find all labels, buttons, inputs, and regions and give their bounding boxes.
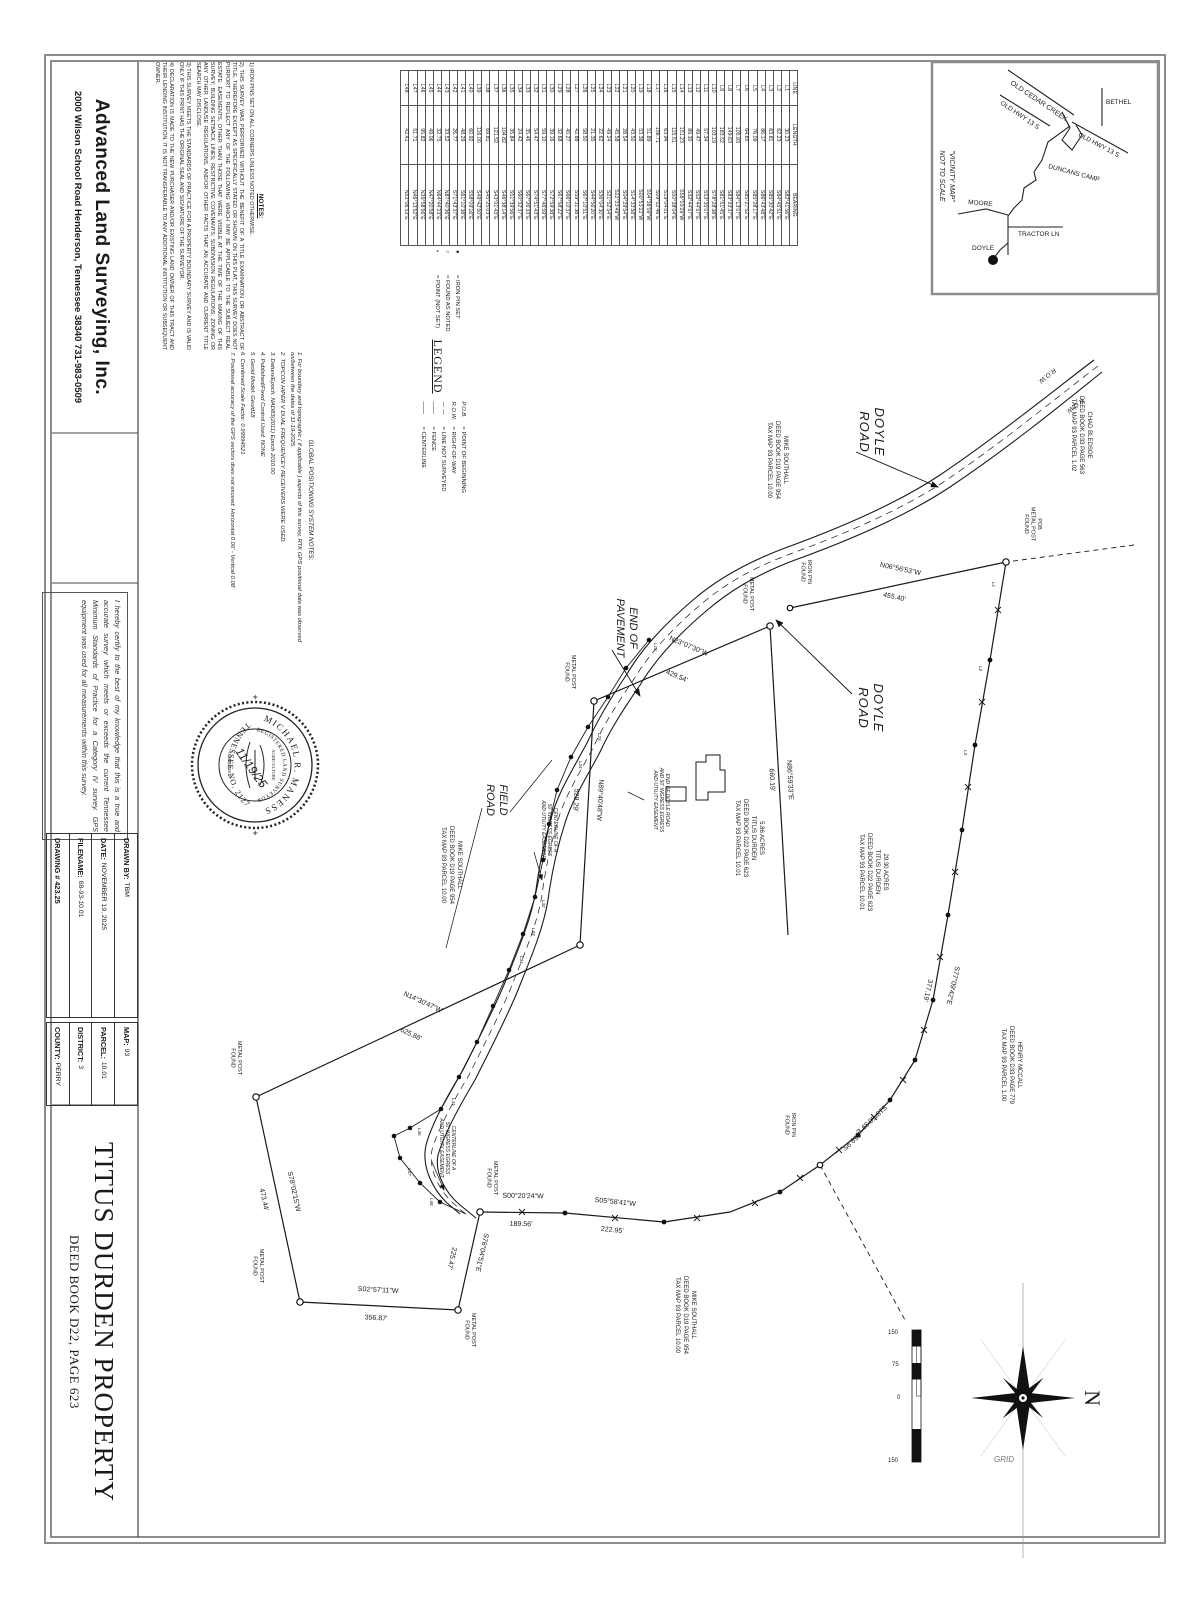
line-table-cell: S67°26'33"E — [522, 164, 530, 245]
line-table-cell: 58.50 — [579, 106, 587, 164]
survey-plat-page: OLD CEDAR CREEK OLD HWY 13 S OLD HWY 13 … — [0, 0, 1200, 1600]
bearing-n06: N06°56'53"W — [879, 561, 922, 578]
line-table-header-cell: LENGTH — [789, 106, 797, 164]
vicinity-caption-1: "VICINITY MAP" — [948, 150, 955, 202]
date-row: DATE:NOVEMBER 19, 2025 — [92, 834, 115, 1017]
compass-rose: N — [971, 1283, 1105, 1558]
line-table-cell: N39°58'56"E — [417, 164, 425, 245]
line-table-cell: 156.71 — [652, 106, 660, 164]
notes-list: 1) IRON PINS SET ON ALL CORNERS UNLESS N… — [153, 62, 253, 350]
line-table-cell: S53°35'07"E — [700, 164, 708, 245]
notes-heading: NOTES: — [256, 62, 264, 350]
doyle-road-arrow-2 — [776, 620, 852, 694]
line-table-row: L17156.71S09°52'46"E — [652, 71, 660, 246]
iron-pin-label-east: IRON PINFOUND — [784, 1113, 797, 1137]
line-table-cell: S59°31'38"E — [571, 164, 579, 245]
legend-abbrev-item: ───= FENCE — [430, 402, 436, 493]
corner-583 — [577, 942, 583, 948]
row-label-2: R.O.W. — [1036, 366, 1057, 385]
scale-bar: 150 75 0 150 — [888, 1330, 921, 1464]
line-table-row: L4751.71N46°13'52"E — [409, 71, 417, 246]
legend-heading: LEGEND — [431, 340, 446, 394]
vicinity-road-doyle — [994, 243, 1008, 258]
line-table-cell: 183.52 — [717, 106, 725, 164]
line-table-cell: L1 — [781, 71, 789, 106]
line-table-cell: L38 — [482, 71, 490, 106]
line-table-row: L10103.19S78°28'38"E — [708, 71, 716, 246]
line-table-cell: 32.75 — [433, 106, 441, 164]
line-table-cell: S61°10'38"E — [458, 164, 466, 245]
scale-0: 0 — [897, 1395, 901, 1401]
line-table-row: L3535.84S51°39'56"E — [506, 71, 514, 246]
l-label-2: L2 — [978, 666, 983, 672]
line-table-row: L486.17S86°43'48"E — [757, 71, 765, 246]
metal-post-label-botleft: METAL POSTFOUND — [252, 1249, 265, 1284]
dist-s00: 189.56' — [510, 1221, 533, 1228]
vicinity-caption-2: NOT TO SCALE — [938, 150, 945, 202]
iron-pin-top — [787, 605, 792, 610]
line-table-row: L37121.52S43°01'43"E — [490, 71, 498, 246]
line-table-cell: S36°04'30"E — [595, 164, 603, 245]
metal-post-left — [591, 698, 597, 704]
line-table-header-cell: LINE — [789, 71, 797, 106]
line-table-cell: S85°28'17"E — [749, 164, 757, 245]
filename-label: FILENAME: — [76, 838, 85, 878]
legend-abbrev-item: ───= CENTERLINE — [420, 402, 426, 493]
line-table-cell: 49.47 — [692, 106, 700, 164]
line-table-cell: 69.81 — [482, 106, 490, 164]
line-table-row: L262.23S84°45'51"E — [773, 71, 781, 246]
line-table-cell: L46 — [417, 71, 425, 106]
line-table-cell: 48.29 — [458, 106, 466, 164]
line-table-row: L2742.88S59°31'38"E — [571, 71, 579, 246]
legend-symbols: ●= IRON PIN SET○= FOUND AS NOTED•= POINT… — [420, 250, 460, 332]
metal-post-leftlow — [253, 1094, 259, 1100]
vicinity-road-moore — [958, 209, 1008, 215]
seal-plus-left: + — [250, 694, 260, 699]
notes-block: NOTES: 1) IRON PINS SET ON ALL CORNERS U… — [140, 62, 264, 350]
l-label-47: L47 — [407, 1168, 412, 1176]
line-table: LINELENGTHBEARING L130.23S82°41'56"EL262… — [400, 70, 798, 246]
line-table-row: L1249.47S52°44'57"E — [692, 71, 700, 246]
bearing-s05: S05°58'41"W — [594, 1196, 636, 1208]
line-table-header-cell: BEARING — [789, 164, 797, 245]
line-table-cell: 22.62 — [595, 106, 603, 164]
line-table-cell: L48 — [401, 71, 409, 106]
legend-text: = LINE NOT SURVEYED — [440, 427, 446, 492]
parcel-titus-5: 5.86 ACRESTITUS DURDENDEED BOOK D22 PAGE… — [734, 799, 764, 878]
line-table-cell: 28.54 — [619, 106, 627, 164]
legend-symbol: R.O.W. — [450, 402, 456, 424]
line-table-row: L2043.50S14°33'58"E — [628, 71, 636, 246]
line-table-cell: S14°33'58"E — [628, 164, 636, 245]
legend-text: = RIGHT-OF-WAY — [450, 427, 456, 474]
line-table-cell: L22 — [611, 71, 619, 106]
line-table-cell: 76.09 — [749, 106, 757, 164]
l-vertex-labels: L1 L2 L3 L13 L23 L24 L32 L33 L34 L44 L46… — [407, 582, 996, 1206]
district-value: 3 — [77, 1065, 84, 1069]
line-table-row: L2349.24S21°52'54"E — [603, 71, 611, 246]
dashed-extension-east — [820, 1165, 905, 1320]
metal-post-label-leftlow: METAL POSTFOUND — [230, 1041, 243, 1076]
gps-note-item: 2. TOPCON HIPER V DUAL FREQUENCEY RECEIV… — [277, 352, 285, 648]
line-table-cell: N47°20'58"E — [425, 164, 433, 245]
vicinity-label-old-hwy-1: OLD HWY 13 S — [999, 100, 1041, 132]
bearing-s00: S00°20'24"W — [502, 1192, 544, 1201]
road-centerline — [431, 366, 1098, 1216]
legend-abbrev-item: R.O.W.= RIGHT-OF-WAY — [450, 402, 456, 493]
bearing-s76: S76°04'51"E — [474, 1232, 491, 1272]
line-table-row: L4333.52N87°40'36"E — [441, 71, 449, 246]
parcel-chad-bledsoe: CHAD BLEDSOEDEED BOOK D33 PAGE 563TAX MA… — [1070, 396, 1092, 475]
vicinity-label-tractor-ln: TRACTOR LN — [1018, 231, 1060, 238]
gps-note-item: 5. Geoid Model: Geoid18 — [247, 352, 255, 648]
line-table-cell: L41 — [458, 71, 466, 106]
dist-n06: 455.40' — [882, 592, 906, 604]
line-table-cell: S09°52'46"E — [652, 164, 660, 245]
line-table-cell: 32.68 — [555, 106, 563, 164]
line-table-cell: 62.23 — [773, 106, 781, 164]
drawn-by-value: TBM — [123, 883, 130, 897]
drawing-info-box: DRAWN BY:TBM DATE:NOVEMBER 19, 2025 FILE… — [46, 833, 138, 1018]
line-table-cell: S19°04'01"E — [660, 164, 668, 245]
map-row: MAP:93 — [114, 1023, 137, 1105]
seal-plus-right: + — [250, 830, 260, 835]
field-road-label: FIELDROAD — [484, 784, 509, 816]
road-edge-2 — [425, 360, 1094, 1214]
line-table-cell: L15 — [668, 71, 676, 106]
line-table-row: L39116.00S49°42'50"E — [474, 71, 482, 246]
line-table-row: L3254.47S74°51'43"E — [530, 71, 538, 246]
company-block: Advanced Land Surveying, Inc. 2000 Wilso… — [48, 62, 136, 432]
line-table-cell: L33 — [522, 71, 530, 106]
drawn-by-label: DRAWN BY: — [122, 838, 131, 880]
legend-text: = FOUND AS NOTED — [444, 275, 450, 332]
line-table-cell: 103.19 — [708, 106, 716, 164]
line-table-cell: L17 — [652, 71, 660, 106]
metal-post-label-left: METAL POSTFOUND — [564, 655, 577, 690]
line-table-cell: S58°03'29"W — [676, 164, 684, 245]
district-label: DISTRICT: — [76, 1027, 85, 1062]
line-table-row: L4549.06N47°20'58"E — [425, 71, 433, 246]
legend-text: = POINT (NOT SET) — [434, 275, 440, 328]
doyle-road-label-2: DOYLEROAD — [856, 683, 886, 732]
l-label-3: L3 — [963, 750, 968, 756]
seal-agriculture: AGRICULTURE — [271, 749, 276, 781]
line-table-cell: S32°44'57"E — [684, 164, 692, 245]
line-table-cell: 54.47 — [530, 106, 538, 164]
line-table-cell: 26.77 — [449, 106, 457, 164]
pob-monument — [1003, 559, 1009, 565]
sheet-subtitle: DEED BOOK D22, PAGE 623 — [67, 1235, 83, 1409]
line-table-row: L1663.94S19°04'01"E — [660, 71, 668, 246]
line-table-cell: L35 — [506, 71, 514, 106]
legend-symbol: — — — [440, 402, 446, 424]
plat-sheet: OLD CEDAR CREEK OLD HWY 13 S OLD HWY 13 … — [0, 0, 1200, 1600]
line-table-cell: 30.23 — [781, 106, 789, 164]
line-table-cell: S84°45'51"E — [773, 164, 781, 245]
legend-text: = POINT OF BEGINNING — [460, 427, 466, 493]
line-table-cell: S66°10'37"E — [563, 164, 571, 245]
line-table-row: L1389.30S32°44'57"E — [684, 71, 692, 246]
metal-post-botleft — [297, 1299, 303, 1305]
line-table-cell: L45 — [425, 71, 433, 106]
bearing-s18: S18°50'39"E — [854, 1103, 888, 1136]
line-table-cell: L14 — [676, 71, 684, 106]
line-table-cell: 95.82 — [417, 106, 425, 164]
legend-symbol-item: ●= IRON PIN SET — [454, 250, 460, 332]
line-table-cell: S81°51'45"E — [717, 164, 725, 245]
line-table-cell: 21.35 — [587, 106, 595, 164]
gps-note-item: 4. Published/Fixed Control Used: NONE — [257, 352, 265, 648]
legend-symbol: ─── — [420, 402, 426, 424]
line-table-cell: L40 — [466, 71, 474, 106]
line-table-cell: L31 — [539, 71, 547, 106]
line-table-row: L3335.46S67°26'33"E — [522, 71, 530, 246]
end-easement-leader — [628, 792, 644, 800]
line-table-cell: S84°13'07"E — [733, 164, 741, 245]
line-table-cell: L19 — [636, 71, 644, 106]
parcel-info-box: MAP:93 PARCEL:10.01 DISTRICT:3 COUNTY:PE… — [46, 1022, 138, 1106]
l-label-13: L13 — [653, 643, 658, 651]
bearing-s78: S78°02'15"W — [286, 1171, 302, 1213]
line-table-cell: L24 — [595, 71, 603, 106]
drawing-no-row: DRAWING # 423.25 — [47, 834, 69, 1017]
parcel-titus-29: 29.30 ACRESTITUS DURDENDEED BOOK D22 PAG… — [858, 833, 888, 912]
creek-vertex-dots — [392, 638, 652, 1205]
gps-note-item: 6. Combined Scale Factor: 0.99994521 — [237, 352, 245, 648]
easement-centerline-label-1: CENTERLINE OF A50' INGRESS EGRESSAND UTI… — [540, 799, 558, 860]
line-table-row: L4842.41N53°06'53"E — [401, 71, 409, 246]
parcel-mike-southall-3: MIKE SOUTHALLDEED BOOK D19 PAGE 954TAX M… — [674, 1276, 696, 1355]
note-item: 4) DECLARATION IS MADE TO THE NEW PURCHA… — [153, 62, 174, 350]
note-item: 3) THIS SURVEY MEETS THE STANDARDS OF PR… — [177, 62, 191, 350]
line-table-row: L2245.58S22°23'49"W — [611, 71, 619, 246]
line-table-cell: L16 — [660, 71, 668, 106]
legend-symbol: ● — [454, 250, 460, 272]
line-table-row: L2422.62S36°04'30"E — [595, 71, 603, 246]
parcel-mike-southall-2: MIKE SOUTHALLDEED BOOK D19 PAGE 954TAX M… — [440, 826, 462, 905]
line-table-cell: L11 — [700, 71, 708, 106]
date-value: NOVEMBER 19, 2025 — [100, 863, 107, 930]
end-easement-label: END OF DOYLE ROADAND 50' INGRESS EGRESSA… — [652, 767, 670, 833]
line-table-cell: 24.42 — [514, 106, 522, 164]
line-table-cell: S45°25'03"E — [482, 164, 490, 245]
line-table-cell: L9 — [717, 71, 725, 106]
sheet-title: TITUS DURDEN PROPERTY — [89, 1142, 120, 1502]
dashed-extension-north — [1006, 545, 1134, 562]
line-table-row: L4226.77S71°43'37"E — [449, 71, 457, 246]
line-table-row: L1157.34S53°35'07"E — [700, 71, 708, 246]
line-table-row: L4148.29S61°10'38"E — [458, 71, 466, 246]
legend-symbol-item: •= POINT (NOT SET) — [434, 250, 440, 332]
line-table-cell: S83°33'37"E — [725, 164, 733, 245]
legend-symbol: P.O.B. — [460, 402, 466, 424]
line-table-cell: L7 — [733, 71, 741, 106]
line-table-cell: 53.38 — [636, 106, 644, 164]
district-row: DISTRICT:3 — [69, 1023, 92, 1105]
legend-block: ●= IRON PIN SET○= FOUND AS NOTED•= POINT… — [420, 250, 466, 490]
gps-note-item: 3. Datum/Epoch: NAD83(2011) Epoch 2010.0… — [267, 352, 275, 648]
note-item: 1) IRON PINS SET ON ALL CORNERS UNLESS N… — [247, 62, 254, 350]
line-table-cell: N53°06'53"E — [401, 164, 409, 245]
line-table-cell: L10 — [708, 71, 716, 106]
legend-symbol: ○ — [444, 250, 450, 272]
bearing-n89: N89°40'48"W — [595, 779, 605, 821]
dist-s18: 369.95' — [840, 1131, 861, 1152]
line-table-cell: S72°59'38"E — [547, 164, 555, 245]
line-table-row: L664.65S85°27'52"E — [741, 71, 749, 246]
line-table-row: L3039.16S72°59'38"E — [547, 71, 555, 246]
line-table-row: L7105.93S84°13'07"E — [733, 71, 741, 246]
iron-pin-label-top: IRON PINFOUND — [800, 560, 813, 584]
line-table-row: L363.81S85°30'42"E — [765, 71, 773, 246]
buildings — [666, 755, 725, 801]
line-table-row: L4432.75N64°44'23"E — [433, 71, 441, 246]
line-table-cell: 64.65 — [741, 106, 749, 164]
line-table-cell: L36 — [498, 71, 506, 106]
line-table-row: L1851.89S04°38'09"W — [644, 71, 652, 246]
bearing-s77: S77°09'42"E — [945, 965, 962, 1005]
surveyor-seal: MICHAEL R. MANESS TENNESSEE NO. 2127 REG… — [192, 694, 318, 835]
gps-notes-block: GLOBAL POSITIONING SYSTEM NOTES: 1. For … — [142, 352, 314, 648]
dist-n14: 625.88' — [399, 1027, 423, 1043]
gps-heading: GLOBAL POSITIONING SYSTEM NOTES: — [306, 352, 315, 648]
line-table-cell: 104.82 — [498, 106, 506, 164]
seal-commerce: COMMERCE — [227, 752, 232, 778]
building-l-shape — [696, 755, 725, 800]
parcel-value: 10.01 — [100, 1062, 107, 1079]
vicinity-label-doyle: DOYLE — [972, 245, 995, 252]
l-label-44: L44 — [451, 1098, 456, 1106]
line-table-cell: L34 — [514, 71, 522, 106]
line-table-row: L9183.52S81°51'45"E — [717, 71, 725, 246]
line-table-cell: S04°38'09"W — [644, 164, 652, 245]
line-table-cell: N46°13'52"E — [409, 164, 417, 245]
legend-symbol: • — [434, 250, 440, 272]
gps-list: 1. For boundary and topographic ( if app… — [227, 352, 303, 648]
line-table-cell: 49.24 — [603, 106, 611, 164]
end-of-pavement-label: END OFPAVEMENT — [614, 598, 639, 658]
bearing-n23: N23°07'30"W — [668, 634, 710, 658]
legend-text: = IRON PIN SET — [454, 275, 460, 319]
line-table-header: LINELENGTHBEARING — [789, 71, 797, 246]
line-table-cell: L8 — [725, 71, 733, 106]
line-table-cell: 45.58 — [611, 106, 619, 164]
line-table-cell: 89.30 — [684, 106, 692, 164]
pob-label: POBMETAL POSTFOUND — [1023, 507, 1042, 542]
line-table-cell: L2 — [773, 71, 781, 106]
l-label-24: L24 — [578, 761, 583, 769]
line-table-row: L4060.92S58°09'16"E — [466, 71, 474, 246]
parcel-label: PARCEL: — [99, 1027, 108, 1059]
line-table-row: L1953.38S00°53'22"W — [636, 71, 644, 246]
doyle-road-label-1: DOYLEROAD — [857, 407, 887, 456]
vicinity-site-dot — [988, 255, 998, 265]
line-table-cell: 121.52 — [490, 106, 498, 164]
line-table-cell: S00°53'22"W — [636, 164, 644, 245]
line-table-cell: S82°41'56"E — [781, 164, 789, 245]
dist-n89: 529.29' — [571, 789, 579, 812]
line-table-cell: 60.92 — [466, 106, 474, 164]
north-label: N — [1080, 1390, 1105, 1406]
bearing-labels: N06°56'53"W 455.40' N23°07'30"W 429.54' … — [258, 561, 962, 1323]
metal-post-label-corner: METAL POSTFOUND — [486, 1161, 499, 1196]
filename-value: 68-93-10.01 — [77, 881, 84, 918]
line-table-cell: N64°44'23"E — [433, 164, 441, 245]
line-table-row: L2932.68S67°58'22"E — [555, 71, 563, 246]
county-row: COUNTY:PERRY — [47, 1023, 69, 1105]
line-table-row: L576.09S85°28'17"E — [749, 71, 757, 246]
line-table-cell: 42.41 — [401, 106, 409, 164]
line-table-cell: L18 — [644, 71, 652, 106]
legend-symbol: ─── — [430, 402, 436, 424]
line-table-cell: 105.93 — [733, 106, 741, 164]
filename-row: FILENAME:68-93-10.01 — [69, 834, 92, 1017]
dist-s02: 356.87' — [365, 1314, 388, 1322]
dist-n86: 660.19' — [767, 768, 775, 791]
line-table-cell: S85°27'52"E — [741, 164, 749, 245]
company-name: Advanced Land Surveying, Inc. — [90, 99, 112, 395]
line-table-cell: S77°46'59"E — [539, 164, 547, 245]
doyle-road-arrow-1 — [856, 452, 938, 487]
line-table-row: L14151.23S58°03'29"W — [676, 71, 684, 246]
company-address: 2000 Wilson School Road Henderson, Tenne… — [72, 91, 83, 403]
legend-abbrev-item: P.O.B.= POINT OF BEGINNING — [460, 402, 466, 493]
line-table-cell: S67°10'51"E — [579, 164, 587, 245]
note-item: 2) THIS SURVEY WAS PERFORMED WITHOUT THE… — [194, 62, 243, 350]
line-table-row: L3159.10S77°46'59"E — [539, 71, 547, 246]
metal-post-botmid — [455, 1307, 461, 1313]
line-table-cell: S22°23'49"W — [611, 164, 619, 245]
line-table-cell: 51.89 — [644, 106, 652, 164]
line-table-cell: S46°38'14"E — [498, 164, 506, 245]
l-label-23: L23 — [597, 733, 602, 741]
vicinity-map: OLD CEDAR CREEK OLD HWY 13 S OLD HWY 13 … — [932, 62, 1158, 294]
line-table-cell: 49.06 — [425, 106, 433, 164]
line-table-cell: L27 — [571, 71, 579, 106]
line-table-cell: S78°28'38"E — [708, 164, 716, 245]
l-label-1: L1 — [991, 582, 996, 588]
bearing-s02: S02°57'11"W — [358, 1285, 399, 1295]
line-table-row: L4695.82N39°58'56"E — [417, 71, 425, 246]
grid-label: GRID — [994, 1455, 1014, 1464]
line-table-row: L2840.27S66°10'37"E — [563, 71, 571, 246]
line-table-cell: S44°56'20"E — [587, 164, 595, 245]
line-table-cell: L23 — [603, 71, 611, 106]
legend-text: = FENCE — [430, 427, 436, 452]
line-table-cell: L25 — [587, 71, 595, 106]
dist-n23: 429.54' — [665, 669, 689, 684]
line-table-body: L130.23S82°41'56"EL262.23S84°45'51"EL363… — [401, 71, 790, 246]
l-label-46: L46 — [417, 1128, 422, 1136]
county-label: COUNTY: — [53, 1027, 62, 1060]
scale-150-right: 150 — [888, 1458, 899, 1464]
line-table-cell: L4 — [757, 71, 765, 106]
line-table-cell: 149.63 — [725, 106, 733, 164]
line-table-cell: 35.46 — [522, 106, 530, 164]
line-table-cell: L42 — [449, 71, 457, 106]
line-table-row: L2521.35S44°56'20"E — [587, 71, 595, 246]
line-table-cell: L47 — [409, 71, 417, 106]
line-table-cell: 51.71 — [409, 106, 417, 164]
iron-pin-east — [817, 1162, 822, 1167]
parcel-henry-mccall: HENRY MCCALLDEED BOOK D33 PAGE 779TAX MA… — [1000, 1026, 1022, 1105]
line-table-cell: 39.16 — [547, 106, 555, 164]
map-label: MAP: — [122, 1027, 131, 1046]
line-table-cell: L44 — [433, 71, 441, 106]
line-table-cell: L43 — [441, 71, 449, 106]
